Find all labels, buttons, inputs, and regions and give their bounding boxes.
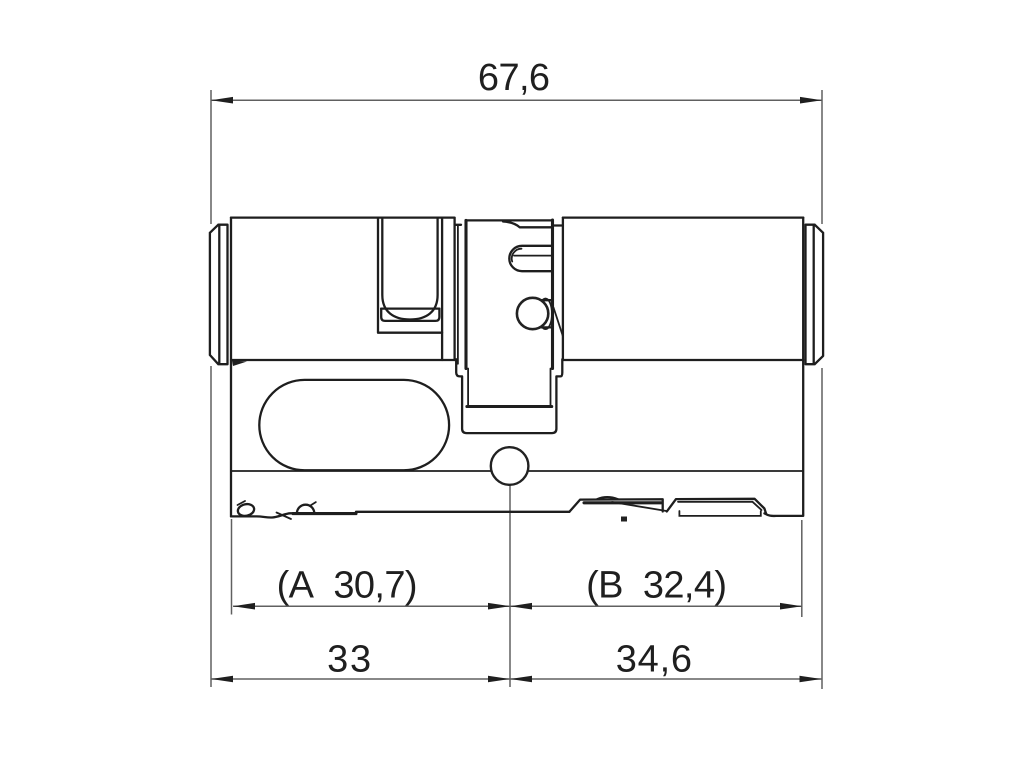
svg-text:33: 33 [327,638,373,680]
svg-text:(B 32,4): (B 32,4) [586,565,726,607]
svg-text:(A 30,7): (A 30,7) [277,565,417,607]
svg-text:34,6: 34,6 [616,638,693,680]
svg-text:67,6: 67,6 [478,57,550,99]
